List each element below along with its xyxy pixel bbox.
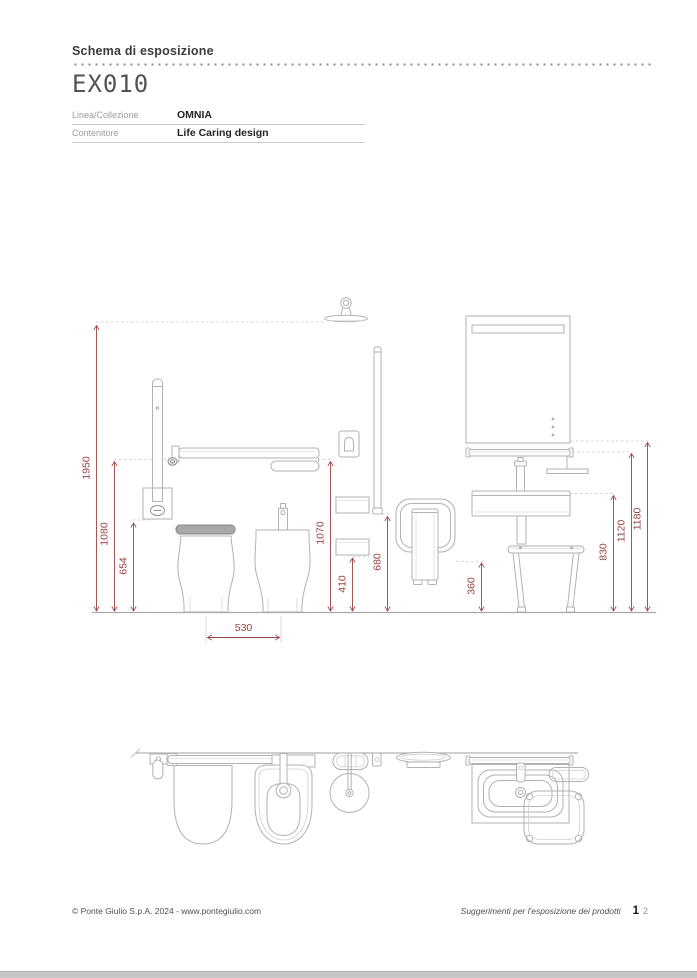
wall-shelves-elevation	[336, 497, 369, 555]
dim-label: 1080	[99, 522, 111, 546]
bidet-elevation	[255, 504, 310, 613]
page-number-current: 1	[633, 905, 639, 917]
page-edge-strip	[0, 971, 697, 978]
dim-label: 410	[337, 575, 349, 593]
fold-up-grab-bar-elevation	[143, 379, 172, 519]
page-footer: © Ponte Giulio S.p.A. 2024 - www.pontegi…	[72, 905, 648, 917]
technical-drawing: 1950 1080 654 1070 410 680 360 830 1120 …	[0, 0, 697, 978]
shower-rail-plan	[373, 753, 382, 766]
copyright-text: © Ponte Giulio S.p.A. 2024 - www.pontegi…	[72, 906, 261, 916]
dim-label: 1180	[632, 508, 644, 531]
shower-seat-plan	[333, 753, 368, 770]
shower-rail-elevation	[373, 347, 382, 514]
dim-label: 830	[598, 543, 610, 561]
dim-label: 680	[372, 553, 384, 571]
footer-note: Suggerimenti per l'esposizione dei prodo…	[461, 906, 621, 916]
dim-label: 1120	[616, 520, 628, 543]
document-page: Schema di esposizione EX010 Linea/Collez…	[0, 0, 697, 978]
dim-label: 654	[118, 557, 130, 575]
folding-shower-seat-elevation	[396, 499, 455, 585]
flush-plate-elevation	[339, 431, 359, 457]
wall-shelf-plan	[397, 752, 451, 767]
page-number-next: 2	[643, 906, 648, 916]
shower-head-elevation	[325, 298, 368, 322]
dim-label: 360	[466, 577, 478, 595]
plan-view	[131, 749, 589, 845]
horizontal-grab-bar-elevation	[168, 446, 319, 471]
dim-label: 1950	[81, 456, 93, 480]
toilet-elevation	[176, 525, 235, 612]
bidet-plan	[255, 754, 315, 845]
washbasin-plan	[466, 756, 573, 823]
dim-label: 1070	[315, 521, 327, 545]
towel-bar-elevation	[466, 448, 588, 474]
mirror-elevation	[466, 316, 570, 443]
dim-label: 530	[235, 622, 253, 634]
toilet-plan	[174, 766, 232, 845]
stool-elevation	[508, 546, 584, 612]
